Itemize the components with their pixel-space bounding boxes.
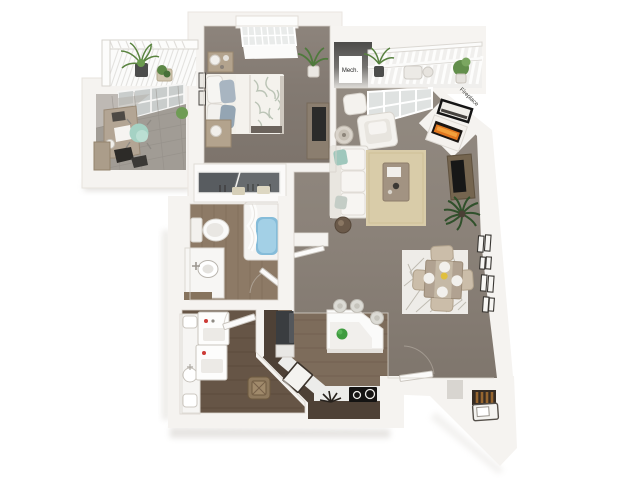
svg-text:Mech.: Mech. <box>342 68 359 74</box>
